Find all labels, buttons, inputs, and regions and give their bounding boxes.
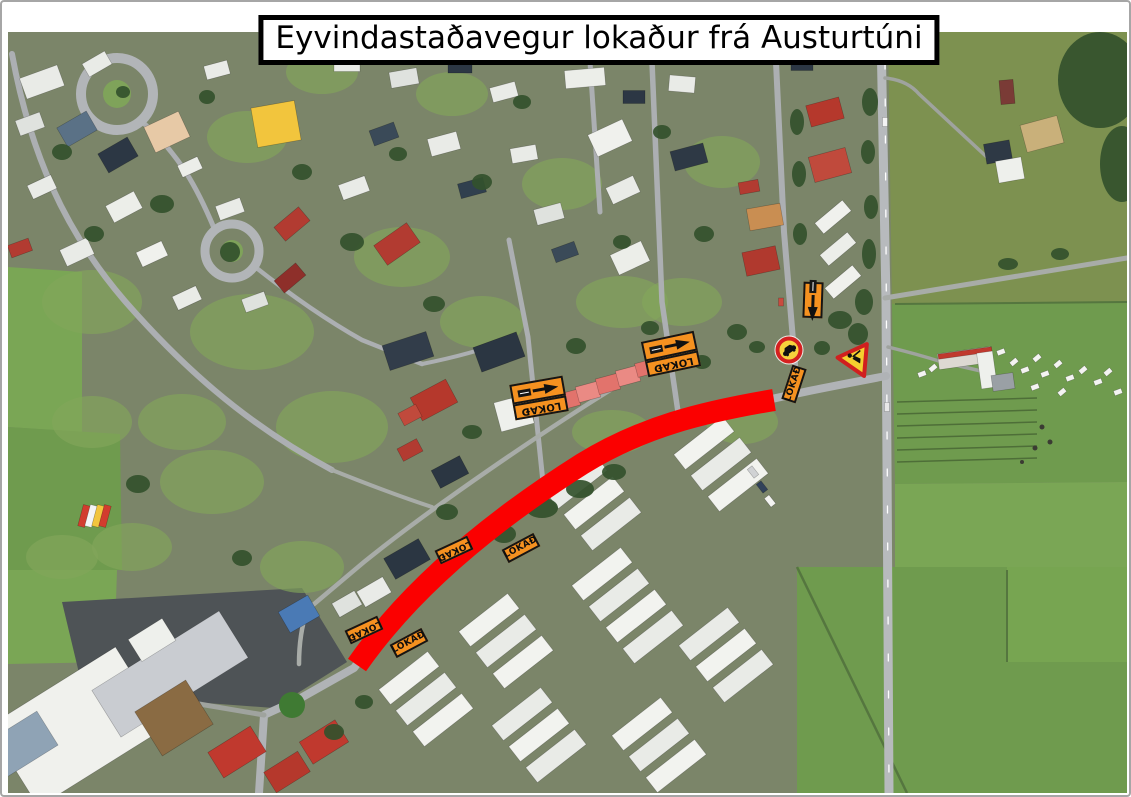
lawn — [26, 535, 98, 579]
tree — [864, 195, 878, 219]
tree — [749, 341, 765, 353]
tree — [423, 296, 445, 312]
tree — [472, 174, 492, 190]
building — [779, 298, 784, 306]
tree — [693, 355, 711, 369]
field — [892, 302, 1127, 484]
tree — [862, 88, 878, 116]
lawn — [276, 391, 388, 463]
aerial-map — [2, 2, 1131, 797]
tree — [340, 233, 364, 251]
lawn — [260, 541, 344, 593]
tree — [828, 311, 852, 329]
lawn — [52, 396, 132, 448]
map-title-banner: Eyvindastaðavegur lokaður frá Austurtúni — [258, 15, 939, 65]
map-circle — [1020, 460, 1024, 464]
lawn — [160, 450, 264, 514]
tree — [792, 161, 806, 187]
tree — [220, 242, 240, 262]
lawn — [416, 72, 488, 116]
tree — [126, 475, 150, 493]
building — [991, 373, 1015, 392]
tree — [861, 140, 875, 164]
map-circle — [279, 692, 305, 718]
tree — [513, 95, 531, 109]
tree — [641, 321, 659, 335]
building — [623, 91, 645, 104]
tree — [324, 724, 344, 740]
lawn — [642, 278, 722, 326]
tree — [389, 147, 407, 161]
map-circle — [1033, 446, 1038, 451]
tree — [566, 338, 586, 354]
tree — [998, 258, 1018, 270]
building — [668, 75, 695, 93]
map-circle — [1040, 425, 1045, 430]
tree — [694, 226, 714, 242]
field — [1007, 567, 1127, 662]
building — [999, 79, 1015, 104]
tree — [84, 226, 104, 242]
building — [885, 403, 890, 412]
tree — [613, 235, 631, 249]
tree — [793, 223, 807, 245]
lawn — [138, 394, 226, 450]
tree — [653, 125, 671, 139]
tree — [790, 109, 804, 135]
tree — [814, 341, 830, 355]
screenshot-frame: LOKAÐLOKAÐLOKAÐLOKAÐLOKAÐLOKAÐLOKAÐ Eyvi… — [0, 0, 1131, 797]
building — [251, 100, 301, 147]
map-features — [2, 32, 1131, 797]
tree — [855, 289, 873, 315]
tree — [1051, 248, 1069, 260]
building — [883, 118, 888, 127]
lawn — [92, 523, 172, 571]
tree — [848, 323, 868, 345]
field — [895, 482, 1127, 567]
tree — [52, 144, 72, 160]
tree — [727, 324, 747, 340]
tree — [355, 695, 373, 709]
map-circle — [1048, 440, 1053, 445]
building — [564, 67, 605, 88]
tree — [116, 86, 130, 98]
tree — [292, 164, 312, 180]
tree — [232, 550, 252, 566]
tree — [462, 425, 482, 439]
tree — [150, 195, 174, 213]
tree — [602, 464, 626, 480]
tree — [436, 504, 458, 520]
tree — [199, 90, 215, 104]
lawn — [522, 158, 602, 210]
tree — [862, 239, 876, 269]
building — [995, 157, 1024, 183]
